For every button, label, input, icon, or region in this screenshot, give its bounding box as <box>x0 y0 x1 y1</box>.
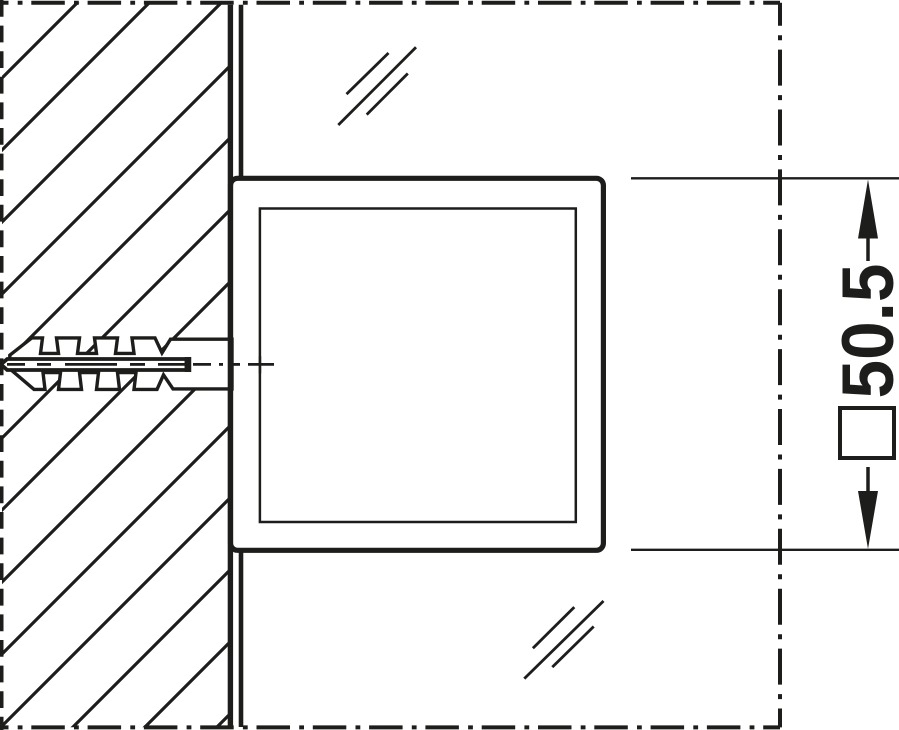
svg-text:50.5: 50.5 <box>828 264 899 399</box>
